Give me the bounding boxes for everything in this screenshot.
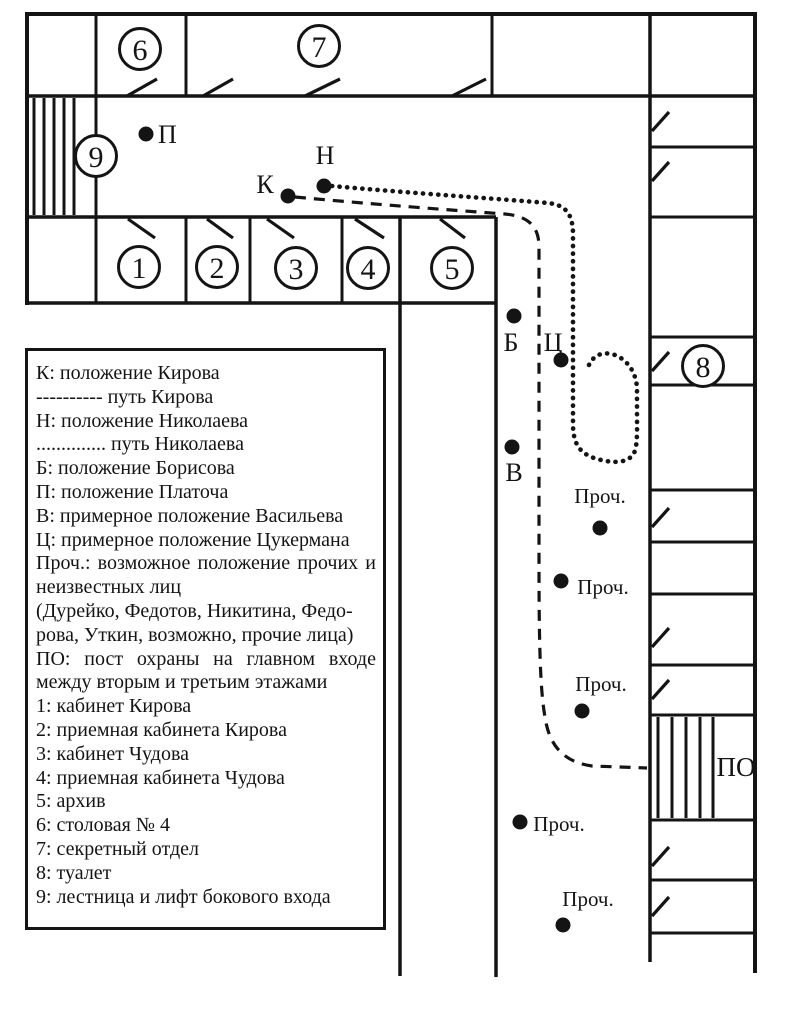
legend-line: 2: приемная кабинета Кирова (36, 719, 376, 743)
legend-line: 4: приемная кабинета Чудова (36, 767, 376, 791)
door-mark (267, 219, 294, 238)
door-mark (652, 897, 669, 916)
legend-line: 9: лестница и лифт бокового входа (36, 886, 376, 910)
door-mark (452, 79, 486, 96)
door-mark (652, 680, 669, 699)
legend-line: П: положение Платоча (36, 481, 376, 505)
legend-line: 5: архив (36, 790, 376, 814)
legend-line: Проч.: возможное положение прочих и (36, 552, 376, 576)
door-mark (128, 219, 155, 238)
others-dot-5 (556, 918, 571, 933)
room-3-number: 3 (289, 253, 304, 286)
door-mark (127, 79, 157, 96)
legend-line: ПО: пост охраны на главном входе (36, 648, 376, 672)
nikolaev-label: Н (316, 141, 335, 170)
others-labels: Проч. Проч. Проч. Проч. Проч. (533, 484, 628, 911)
door-mark (207, 219, 233, 238)
door-mark (652, 847, 669, 866)
platoch-dot (139, 127, 154, 142)
legend-line: 1: кабинет Кирова (36, 695, 376, 719)
room-6-number: 6 (133, 34, 148, 67)
others-dot-1 (593, 521, 608, 536)
legend-line: 7: секретный отдел (36, 838, 376, 862)
vasilev-label: В (505, 458, 522, 487)
legend-line: .............. путь Николаева (36, 433, 376, 457)
legend-line: В: примерное положение Васильева (36, 505, 376, 529)
door-mark (652, 508, 669, 527)
legend-line: ---------- путь Кирова (36, 386, 376, 410)
others-dot-4 (513, 815, 528, 830)
legend-line: рова, Уткин, возможно, прочие лица) (36, 624, 376, 648)
tsukerman-label: Ц (544, 328, 563, 357)
platoch-label: П (158, 120, 177, 149)
legend-line: 8: туалет (36, 862, 376, 886)
legend-line: (Дурейко, Федотов, Никитина, Федо- (36, 600, 376, 624)
door-mark (355, 219, 384, 238)
legend-line: 3: кабинет Чудова (36, 743, 376, 767)
room-8-number: 8 (696, 351, 711, 384)
room-9-number: 9 (89, 141, 104, 174)
door-mark (652, 162, 669, 181)
guard-post-label: ПО (717, 752, 756, 782)
door-mark (440, 219, 465, 238)
nikolaev-dot (317, 179, 332, 194)
kirov-label: К (256, 170, 274, 199)
door-mark (652, 628, 669, 647)
legend-line: между вторым и третьим этажами (36, 671, 376, 695)
room-7-number: 7 (312, 31, 327, 64)
door-mark (305, 79, 340, 96)
side-entrance-stairs-hatch (34, 98, 74, 215)
floor-plan-page: 6 7 9 1 2 3 4 5 8 П К Н Б Ц В ПО Проч. П… (0, 0, 790, 1014)
door-mark (203, 79, 233, 96)
room-1-number: 1 (132, 252, 147, 285)
borisov-dot (507, 309, 522, 324)
others-label-5: Проч. (562, 887, 613, 911)
others-dot-2 (554, 574, 569, 589)
room-4-number: 4 (361, 253, 376, 286)
vasilev-dot (505, 440, 520, 455)
legend-line: 6: столовая № 4 (36, 814, 376, 838)
others-label-2: Проч. (577, 575, 628, 599)
borisov-label: Б (504, 328, 519, 357)
legend-line: Б: положение Борисова (36, 457, 376, 481)
legend-line: неизвестных лиц (36, 576, 376, 600)
others-label-3: Проч. (575, 672, 626, 696)
legend-line: Н: положение Николаева (36, 410, 376, 434)
others-dot-3 (575, 704, 590, 719)
kirov-dot (281, 189, 296, 204)
others-label-4: Проч. (533, 812, 584, 836)
others-label-1: Проч. (574, 484, 625, 508)
main-entrance-stairs-hatch (658, 717, 713, 818)
legend-box: К: положение Кирова ---------- путь Киро… (25, 348, 386, 930)
room-2-number: 2 (210, 252, 225, 285)
door-mark (652, 352, 669, 371)
legend-line: Ц: примерное положение Цукермана (36, 529, 376, 553)
room-5-number: 5 (445, 253, 460, 286)
door-mark (652, 112, 669, 131)
legend-line: К: положение Кирова (36, 362, 376, 386)
